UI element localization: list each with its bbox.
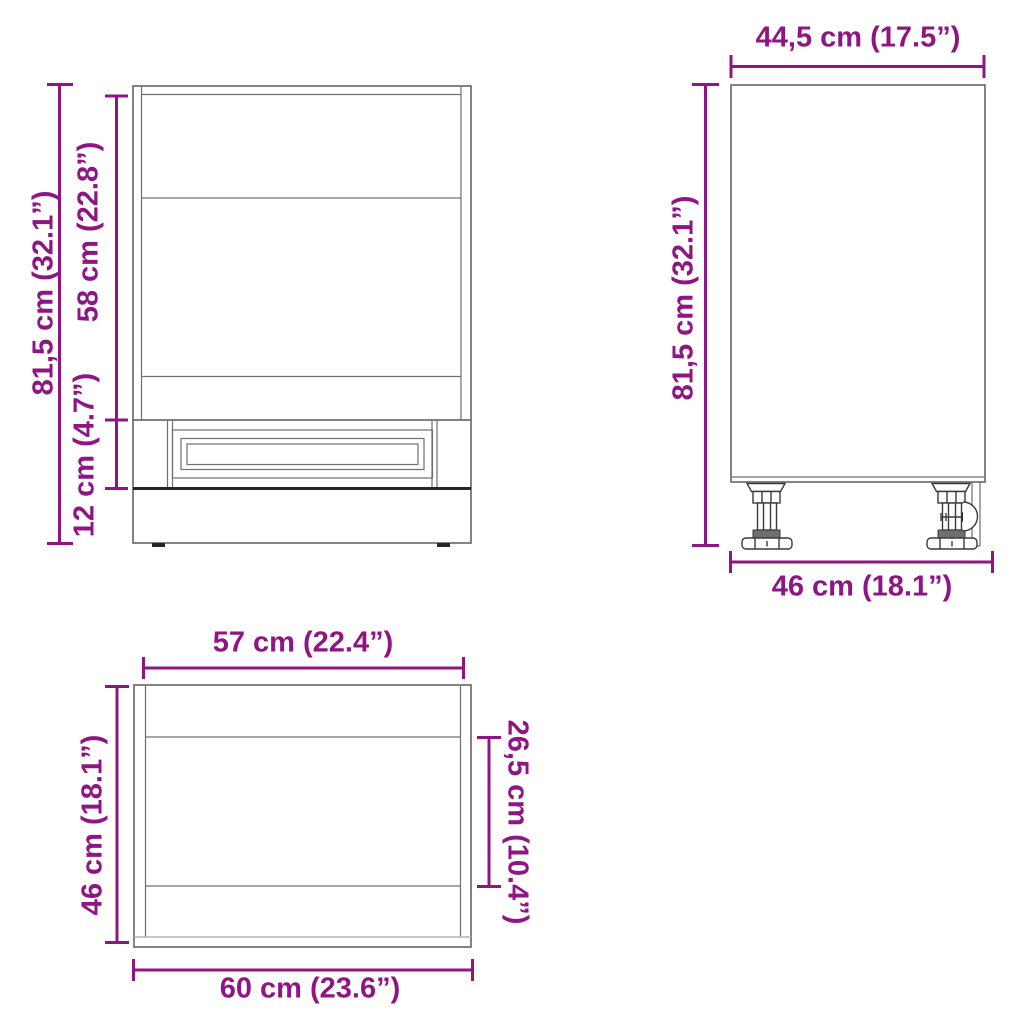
- front-niche-height-label: 58 cm (22.8”): [75, 142, 104, 323]
- front-drawer-height-label: 12 cm (4.7”): [71, 373, 100, 537]
- top-inner-depth-label: 26,5 cm (10.4”): [503, 720, 532, 925]
- top-overall-width-label: 60 cm (23.6”): [220, 975, 401, 1004]
- front-view-drawing: [133, 86, 471, 547]
- front-overall-height-label: 81,5 cm (32.1”): [30, 191, 59, 396]
- cabinet-dimension-diagram: 81,5 cm (32.1”) 58 cm (22.8”) 12 cm (4.7…: [0, 0, 1024, 1024]
- cabinet-leg: [742, 484, 792, 550]
- side-view-drawing: [731, 85, 985, 549]
- side-bottom-depth-label: 46 cm (18.1”): [772, 573, 953, 602]
- top-depth-label: 46 cm (18.1”): [79, 735, 108, 916]
- side-overall-height-label: 81,5 cm (32.1”): [670, 196, 699, 401]
- top-inner-width-label: 57 cm (22.4”): [213, 629, 394, 658]
- top-view-drawing: [134, 685, 471, 947]
- side-top-depth-label: 44,5 cm (17.5”): [756, 24, 961, 53]
